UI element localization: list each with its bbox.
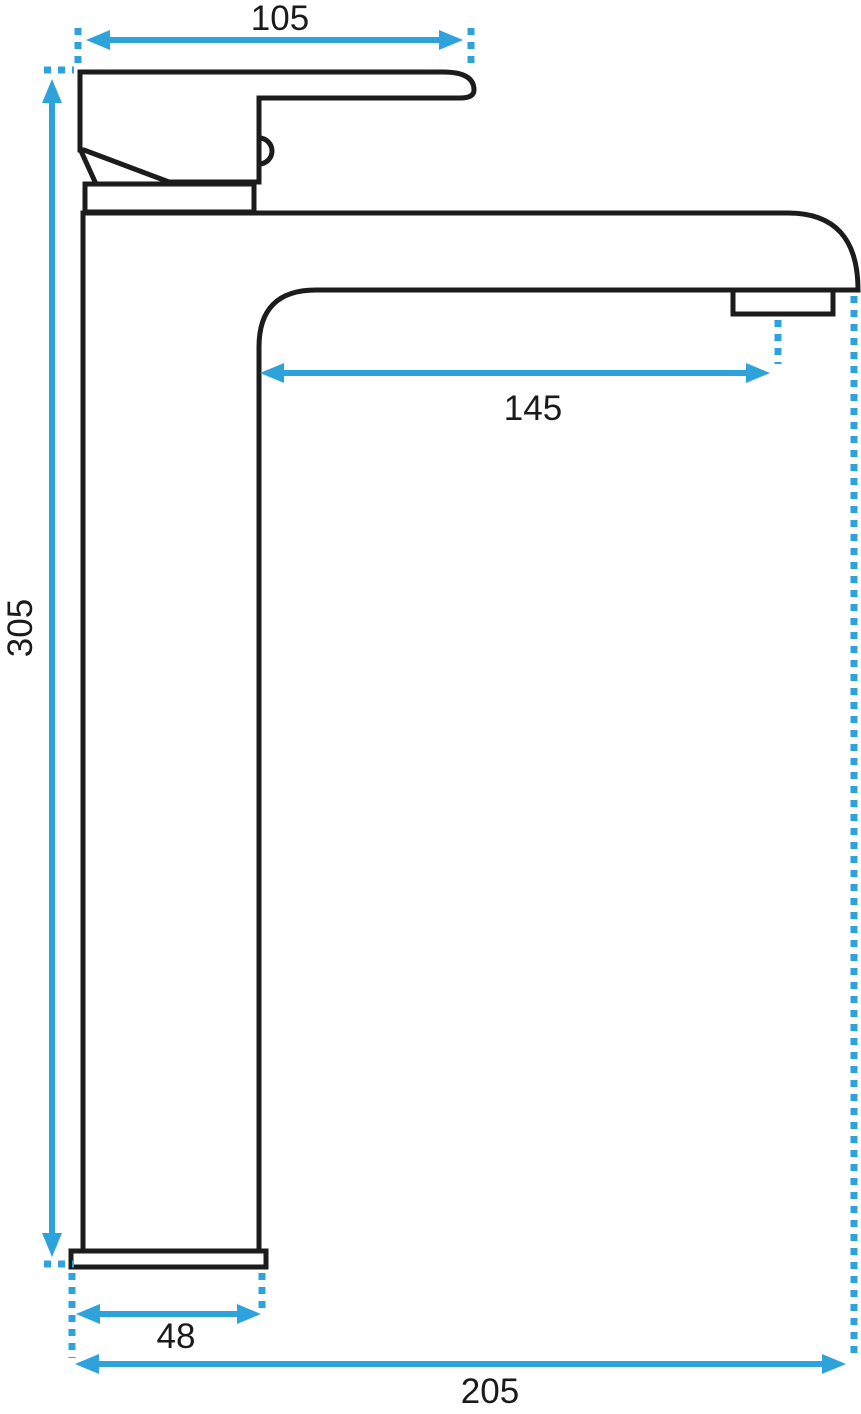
dimension-label-total-height: 305 xyxy=(1,599,40,657)
dimension-label-base-width: 48 xyxy=(157,1317,196,1356)
arrowhead-left-icon xyxy=(260,363,284,383)
arrowhead-left-icon xyxy=(76,1304,100,1324)
arrowhead-right-icon xyxy=(822,1354,846,1374)
faucet-outline xyxy=(71,72,858,1267)
technical-drawing-page: 105 145 305 48 xyxy=(0,0,861,1414)
arrowhead-right-icon xyxy=(439,30,463,50)
dimension-label-overall-depth: 205 xyxy=(461,1372,519,1411)
arrowhead-left-icon xyxy=(75,1354,99,1374)
dimension-spout-reach: 145 xyxy=(260,320,778,428)
arrowhead-down-icon xyxy=(42,1233,62,1257)
arrowhead-up-icon xyxy=(42,79,62,103)
faucet-dimension-diagram: 105 145 305 48 xyxy=(0,0,861,1414)
faucet-base-plate xyxy=(71,1251,266,1267)
dimension-handle-width: 105 xyxy=(78,0,471,66)
faucet-neck-collar xyxy=(85,184,254,212)
arrowhead-left-icon xyxy=(86,30,110,50)
arrowhead-right-icon xyxy=(237,1304,261,1324)
faucet-handle xyxy=(80,72,474,182)
dimension-label-spout-reach: 145 xyxy=(504,389,562,428)
dimension-total-height: 305 xyxy=(1,70,74,1264)
arrowhead-right-icon xyxy=(746,363,770,383)
dimension-overall-depth: 205 xyxy=(75,296,854,1411)
dimension-base-width: 48 xyxy=(72,1273,262,1358)
faucet-body-and-spout xyxy=(83,213,858,1251)
spout-aerator xyxy=(733,290,833,314)
dimension-label-handle-width: 105 xyxy=(251,0,309,38)
